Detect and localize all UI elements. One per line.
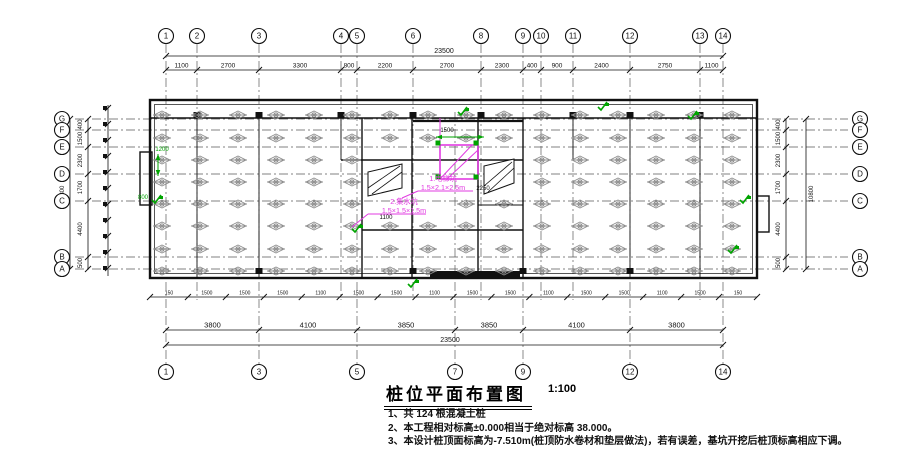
- pile-marker: [571, 134, 589, 142]
- axis-bubble: 1: [159, 29, 174, 44]
- dim-text: 4100: [568, 321, 585, 330]
- axis-bubble: F: [55, 123, 70, 138]
- pile-marker: [343, 134, 361, 142]
- dim-text: 1700: [78, 180, 84, 194]
- dim-text: B: [59, 253, 64, 262]
- dim-text: 3: [257, 32, 262, 41]
- pile-marker: [343, 245, 361, 253]
- dim-text: 3850: [481, 321, 498, 330]
- dim-text: 1100: [657, 291, 668, 297]
- pile-marker: [267, 134, 285, 142]
- dim-text: 9: [521, 32, 526, 41]
- pile-marker: [419, 245, 437, 253]
- dim-text: D: [857, 170, 863, 179]
- piles-layer: [153, 111, 741, 275]
- general-notes: 1、共 124 根混凝土桩 2、本工程相对标高±0.000相当于绝对标高 38.…: [388, 408, 847, 449]
- dim-text: 1500: [78, 131, 84, 145]
- pile-marker: [571, 178, 589, 186]
- dim-text: 800: [344, 63, 355, 70]
- axis-bubble: 13: [693, 29, 708, 44]
- dim-text: 6: [411, 32, 416, 41]
- axis-bubble: 1: [159, 365, 174, 380]
- dim-text: 500: [78, 257, 84, 268]
- pile-marker: [457, 134, 475, 142]
- pile-marker: [457, 245, 475, 253]
- pile-marker: [533, 222, 551, 230]
- tiny-dim-text: 2250: [476, 186, 490, 192]
- axis-bubble: D: [55, 167, 70, 182]
- axis-bubble: A: [55, 262, 70, 277]
- dim-text: 1100: [705, 63, 719, 70]
- dim-text: 400: [78, 119, 84, 130]
- axis-bubble: 5: [350, 29, 365, 44]
- pile-marker: [419, 134, 437, 142]
- dimensions-layer: 2350011002700330080022002700230040090024…: [60, 48, 815, 348]
- pile-marker: [647, 222, 665, 230]
- pile-marker: [723, 134, 741, 142]
- pile-marker: [609, 245, 627, 253]
- dim-text: 1: [164, 32, 169, 41]
- note-line: 3、本设计桩顶面标高为-7.510m(桩顶防水卷材和垫层做法)，若有误差，基坑开…: [388, 435, 847, 449]
- pile-marker: [191, 222, 209, 230]
- dim-text: 1100: [175, 63, 189, 70]
- dim-text: 1500: [695, 291, 706, 297]
- note-line: 1、共 124 根混凝土桩: [388, 408, 847, 422]
- dim-text: 10800: [809, 185, 815, 202]
- dim-text: 3800: [668, 321, 685, 330]
- dim-text: A: [857, 265, 863, 274]
- pile-marker: [609, 222, 627, 230]
- pile-marker: [267, 178, 285, 186]
- pile-marker: [305, 134, 323, 142]
- drawing-title: 桩位平面布置图: [384, 380, 532, 410]
- pile-marker: [647, 134, 665, 142]
- pile-marker: [533, 178, 551, 186]
- dim-text: 500: [776, 257, 782, 268]
- pile-marker: [153, 222, 171, 230]
- axis-bubble: 14: [716, 365, 731, 380]
- title-block: 桩位平面布置图1:100: [384, 380, 576, 410]
- dim-text: 1500: [277, 291, 288, 297]
- pit-name: 2.集水坑: [390, 197, 418, 206]
- dim-text: 14: [719, 32, 728, 41]
- dim-text: 3850: [398, 321, 415, 330]
- pile-marker: [229, 134, 247, 142]
- pile-marker: [495, 222, 513, 230]
- pile-marker: [723, 222, 741, 230]
- dim-text: 1500: [505, 291, 516, 297]
- pile-marker: [191, 134, 209, 142]
- tiny-dim-text: 1500: [440, 128, 454, 134]
- pile-marker: [647, 178, 665, 186]
- pile-marker: [153, 178, 171, 186]
- dim-text: 1500: [776, 131, 782, 145]
- dim-text: 1500: [619, 291, 630, 297]
- tiny-dim-text: 800: [138, 195, 149, 201]
- axis-bubble: 2: [190, 29, 205, 44]
- dim-text: 8: [479, 32, 484, 41]
- pile-marker: [533, 156, 551, 164]
- dim-text: 900: [552, 63, 563, 70]
- tiny-dim-text: 1100: [380, 215, 394, 221]
- pile-marker: [609, 134, 627, 142]
- dim-text: 1700: [776, 180, 782, 194]
- dim-text: 2300: [78, 153, 84, 167]
- pile-marker: [647, 156, 665, 164]
- dim-text: D: [59, 170, 65, 179]
- axis-bubble: 12: [623, 365, 638, 380]
- pile-marker: [191, 178, 209, 186]
- grip-handle: [474, 175, 479, 180]
- dim-text: A: [59, 265, 65, 274]
- pile-marker: [153, 245, 171, 253]
- pile-marker: [343, 156, 361, 164]
- dim-text: 13: [696, 32, 705, 41]
- dim-text: 2750: [658, 63, 673, 70]
- check-mark: [740, 195, 751, 203]
- pile-marker: [191, 156, 209, 164]
- dim-text: 1: [164, 368, 169, 377]
- dim-text: 23500: [440, 337, 460, 344]
- grip-handle: [436, 141, 441, 146]
- axis-bubble: F: [853, 123, 868, 138]
- cad-viewport[interactable]: 2350011002700330080022002700230040090024…: [0, 0, 900, 469]
- pile-marker: [153, 134, 171, 142]
- pile-marker: [229, 156, 247, 164]
- dim-text: 1500: [581, 291, 592, 297]
- axis-bubble: 3: [252, 29, 267, 44]
- axis-bubble: 3: [252, 365, 267, 380]
- pile-marker: [495, 245, 513, 253]
- dim-text: 12: [626, 32, 635, 41]
- axis-bubble: C: [55, 194, 70, 209]
- pile-marker: [267, 245, 285, 253]
- dim-text: B: [857, 253, 862, 262]
- axis-bubble: 6: [406, 29, 421, 44]
- dim-text: 1500: [391, 291, 402, 297]
- pile-marker: [267, 222, 285, 230]
- pile-marker: [381, 134, 399, 142]
- pile-marker: [647, 245, 665, 253]
- pile-marker: [381, 222, 399, 230]
- pile-marker: [267, 156, 285, 164]
- pile-marker: [609, 178, 627, 186]
- pile-marker: [533, 134, 551, 142]
- axis-bubble: 12: [623, 29, 638, 44]
- pile-marker: [457, 222, 475, 230]
- pile-marker: [571, 222, 589, 230]
- pile-marker: [191, 245, 209, 253]
- axis-bubble: 7: [448, 365, 463, 380]
- pile-marker: [609, 156, 627, 164]
- axis-bubble: E: [55, 140, 70, 155]
- axis-bubble: 9: [516, 29, 531, 44]
- pile-marker: [229, 178, 247, 186]
- dim-text: C: [59, 197, 65, 206]
- pile-marker: [305, 178, 323, 186]
- dim-text: 2300: [495, 63, 510, 70]
- dim-text: 1100: [429, 291, 440, 297]
- dim-text: 150: [165, 291, 174, 297]
- dim-text: 3300: [293, 63, 308, 70]
- check-mark: [598, 102, 609, 110]
- drawing-scale: 1:100: [548, 383, 576, 395]
- pile-marker: [419, 222, 437, 230]
- axis-bubble: 10: [534, 29, 549, 44]
- dim-text: 150: [734, 291, 743, 297]
- pile-marker: [343, 178, 361, 186]
- axis-bubble: E: [853, 140, 868, 155]
- dim-text: 3: [257, 368, 262, 377]
- dim-text: 2400: [594, 63, 609, 70]
- dim-text: 1500: [201, 291, 212, 297]
- pile-marker: [229, 222, 247, 230]
- axis-bubble: 8: [474, 29, 489, 44]
- dim-text: 1500: [467, 291, 478, 297]
- dim-text: 1100: [543, 291, 554, 297]
- dim-text: 1500: [353, 291, 364, 297]
- dim-text: 2200: [378, 63, 393, 70]
- dim-text: 5: [355, 368, 360, 377]
- dim-text: 5: [355, 32, 360, 41]
- dim-text: 4100: [300, 321, 317, 330]
- pile-marker: [533, 245, 551, 253]
- dim-text: 14: [719, 368, 728, 377]
- axis-bubble: D: [853, 167, 868, 182]
- dim-text: 1500: [239, 291, 250, 297]
- dim-text: E: [59, 143, 64, 152]
- pile-marker: [723, 178, 741, 186]
- dim-text: E: [857, 143, 862, 152]
- dim-text: 12: [626, 368, 635, 377]
- dim-text: 7: [453, 368, 458, 377]
- pile-marker: [381, 245, 399, 253]
- pit-name: 1.电梯坑: [429, 174, 457, 183]
- dim-text: 2: [195, 32, 200, 41]
- check-mark: [408, 279, 419, 287]
- pile-marker: [305, 245, 323, 253]
- axis-bubble: 5: [350, 365, 365, 380]
- dim-text: 2300: [776, 153, 782, 167]
- pile-marker: [723, 156, 741, 164]
- axis-bubble: A: [853, 262, 868, 277]
- axis-bubble: 9: [516, 365, 531, 380]
- dim-text: 23500: [434, 48, 454, 55]
- dim-text: F: [60, 126, 65, 135]
- pile-marker: [571, 245, 589, 253]
- dim-text: 9: [521, 368, 526, 377]
- dim-text: 4400: [776, 222, 782, 236]
- dim-text: 400: [527, 63, 538, 70]
- pile-marker: [229, 245, 247, 253]
- dim-text: 11: [569, 32, 578, 41]
- tiny-dim-text: 1200: [155, 147, 169, 153]
- pile-marker: [305, 156, 323, 164]
- pile-marker: [571, 156, 589, 164]
- axis-bubble: 4: [334, 29, 349, 44]
- dim-text: 1100: [315, 291, 326, 297]
- dim-text: 3800: [204, 321, 221, 330]
- axis-bubble: C: [853, 194, 868, 209]
- dim-text: F: [858, 126, 863, 135]
- dim-text: 400: [776, 119, 782, 130]
- dim-text: 2700: [221, 63, 236, 70]
- grip-handle: [474, 141, 479, 146]
- dim-text: 4: [339, 32, 344, 41]
- dim-text: 4400: [78, 222, 84, 236]
- dim-text: 10: [537, 32, 546, 41]
- pile-marker: [495, 134, 513, 142]
- note-line: 2、本工程相对标高±0.000相当于绝对标高 38.000。: [388, 422, 847, 436]
- dim-text: 2700: [440, 63, 455, 70]
- pile-marker: [305, 222, 323, 230]
- axis-bubble: 14: [716, 29, 731, 44]
- axis-bubble: 11: [566, 29, 581, 44]
- dim-text: C: [857, 197, 863, 206]
